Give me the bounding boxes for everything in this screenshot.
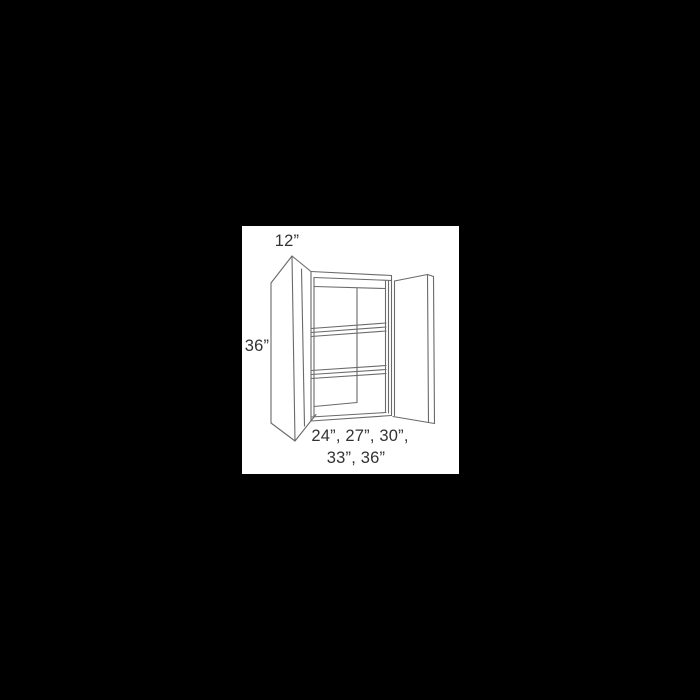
available-widths-label-line2: 33”, 36” — [327, 450, 385, 467]
available-widths-label-line1: 24”, 27”, 30”, — [311, 428, 408, 445]
height-dimension-label: 36” — [245, 338, 269, 355]
product-diagram-panel: 12” 36” 24”, 27”, 30”, 33”, 36” — [242, 226, 459, 474]
page-background: 12” 36” 24”, 27”, 30”, 33”, 36” — [0, 0, 700, 700]
depth-dimension-label: 12” — [275, 233, 299, 250]
